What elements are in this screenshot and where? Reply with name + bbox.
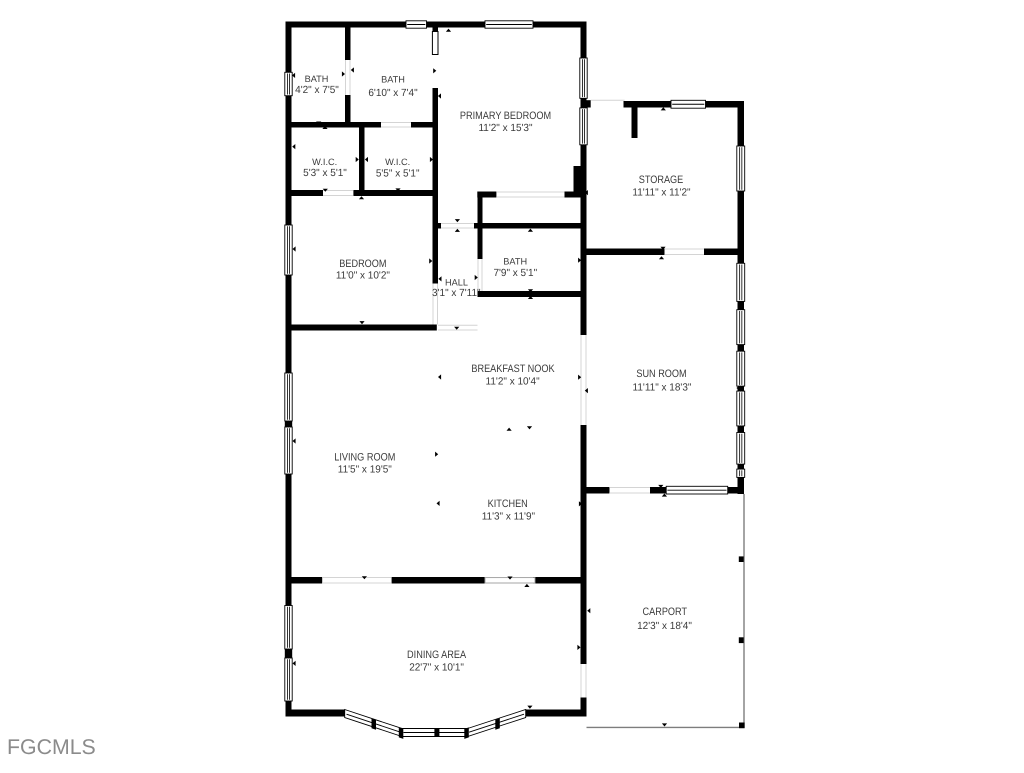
svg-text:BREAKFAST NOOK: BREAKFAST NOOK <box>471 363 555 375</box>
svg-text:4'2" x 7'5": 4'2" x 7'5" <box>295 85 339 96</box>
svg-text:CARPORT: CARPORT <box>643 606 688 618</box>
svg-text:STORAGE: STORAGE <box>639 174 684 186</box>
svg-text:11'2" x 15'3": 11'2" x 15'3" <box>478 123 532 134</box>
svg-text:5'5" x 5'1": 5'5" x 5'1" <box>376 169 420 180</box>
svg-text:6'10" x 7'4": 6'10" x 7'4" <box>368 88 418 99</box>
svg-text:PRIMARY BEDROOM: PRIMARY BEDROOM <box>460 110 551 122</box>
svg-text:W.I.C.: W.I.C. <box>385 157 410 167</box>
svg-text:SUN ROOM: SUN ROOM <box>636 368 686 380</box>
svg-text:11'5" x 19'5": 11'5" x 19'5" <box>338 465 392 476</box>
svg-text:11'11" x 11'2": 11'11" x 11'2" <box>632 188 690 199</box>
svg-text:22'7" x 10'1": 22'7" x 10'1" <box>409 662 464 673</box>
svg-text:BATH: BATH <box>503 257 527 267</box>
svg-text:11'11" x 18'3": 11'11" x 18'3" <box>633 382 692 393</box>
svg-text:11'3" x 11'9": 11'3" x 11'9" <box>482 511 536 522</box>
svg-text:LIVING ROOM: LIVING ROOM <box>334 452 395 464</box>
svg-text:W.I.C.: W.I.C. <box>312 157 337 167</box>
svg-text:11'2" x 10'4": 11'2" x 10'4" <box>486 377 540 388</box>
svg-text:FGCMLS: FGCMLS <box>7 735 96 759</box>
svg-text:HALL: HALL <box>445 277 468 287</box>
svg-text:3'1" x 7'11": 3'1" x 7'11" <box>432 288 481 299</box>
svg-text:BATH: BATH <box>305 74 329 84</box>
svg-text:BATH: BATH <box>381 75 405 85</box>
svg-text:11'0" x 10'2": 11'0" x 10'2" <box>336 271 390 282</box>
svg-text:DINING AREA: DINING AREA <box>407 649 467 661</box>
svg-text:12'3" x 18'4": 12'3" x 18'4" <box>637 621 692 632</box>
svg-text:BEDROOM: BEDROOM <box>339 258 386 270</box>
svg-text:KITCHEN: KITCHEN <box>488 498 528 510</box>
svg-text:7'9" x 5'1": 7'9" x 5'1" <box>493 268 537 279</box>
svg-text:5'3" x 5'1": 5'3" x 5'1" <box>303 168 347 179</box>
